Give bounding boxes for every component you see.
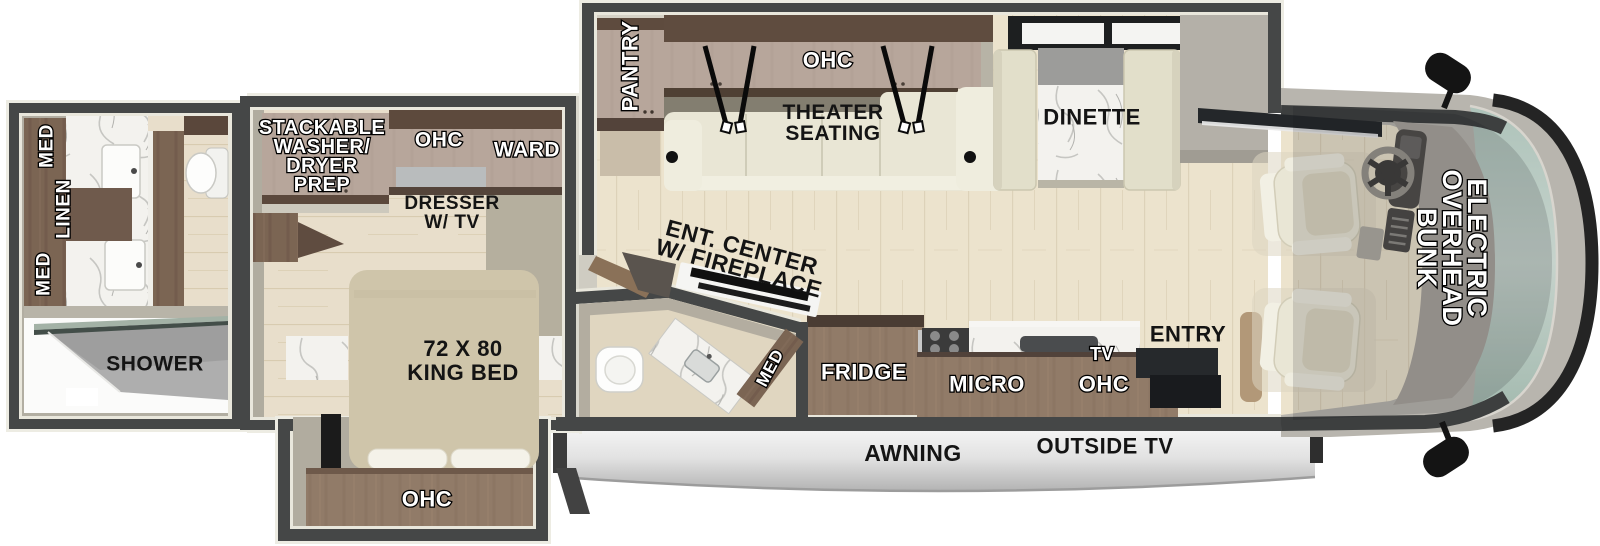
svg-text:OHC: OHC — [415, 129, 463, 152]
svg-text:MED: MED — [37, 124, 58, 168]
svg-text:ENTRY: ENTRY — [1150, 322, 1226, 347]
svg-text:SHOWER: SHOWER — [106, 353, 204, 376]
svg-text:MED: MED — [34, 252, 55, 296]
svg-text:FRIDGE: FRIDGE — [821, 360, 907, 385]
svg-text:W/ TV: W/ TV — [424, 212, 479, 233]
svg-text:OHC: OHC — [402, 487, 452, 512]
svg-text:WARD: WARD — [494, 139, 560, 162]
svg-text:THEATER: THEATER — [782, 101, 883, 124]
svg-text:OUTSIDE TV: OUTSIDE TV — [1036, 434, 1173, 459]
svg-text:72 X 80: 72 X 80 — [423, 336, 502, 361]
svg-text:LINEN: LINEN — [54, 179, 75, 239]
svg-text:TV: TV — [1090, 344, 1114, 364]
svg-text:AWNING: AWNING — [864, 440, 962, 466]
svg-text:OHC: OHC — [803, 48, 853, 73]
svg-text:DINETTE: DINETTE — [1043, 105, 1141, 130]
svg-text:PANTRY: PANTRY — [618, 21, 643, 112]
svg-text:OHC: OHC — [1079, 372, 1129, 397]
svg-text:MICRO: MICRO — [949, 372, 1025, 397]
svg-text:DRESSER: DRESSER — [404, 193, 499, 214]
svg-text:BUNK: BUNK — [1412, 208, 1442, 288]
svg-text:SEATING: SEATING — [785, 122, 880, 145]
svg-text:PREP: PREP — [294, 174, 350, 196]
svg-text:KING BED: KING BED — [407, 360, 519, 385]
